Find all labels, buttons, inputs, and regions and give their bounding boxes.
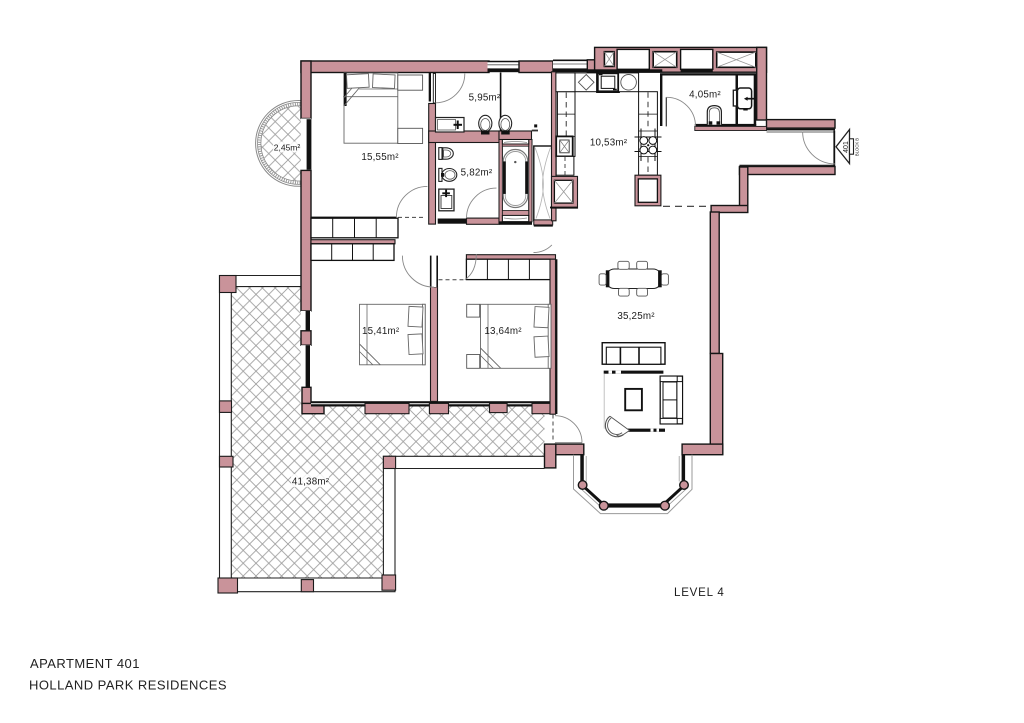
svg-text:2,45m²: 2,45m² [274,143,301,153]
svg-text:401: 401 [843,141,850,153]
svg-text:LEVEL 4: LEVEL 4 [674,587,725,599]
svg-text:35,25m²: 35,25m² [617,311,655,322]
svg-text:4,05m²: 4,05m² [689,90,721,101]
svg-text:15,41m²: 15,41m² [362,326,400,337]
svg-text:HOLLAND PARK RESIDENCES: HOLLAND PARK RESIDENCES [29,678,227,693]
svg-text:13,64m²: 13,64m² [484,326,522,337]
svg-text:10,53m²: 10,53m² [590,138,628,149]
svg-text:15,55m²: 15,55m² [361,152,399,163]
svg-text:41,38m²: 41,38m² [292,477,330,488]
svg-text:5,95m²: 5,95m² [469,93,501,104]
svg-text:BLOCK B: BLOCK B [855,138,860,156]
svg-text:APARTMENT 401: APARTMENT 401 [30,656,140,671]
svg-text:5,82m²: 5,82m² [461,168,493,179]
